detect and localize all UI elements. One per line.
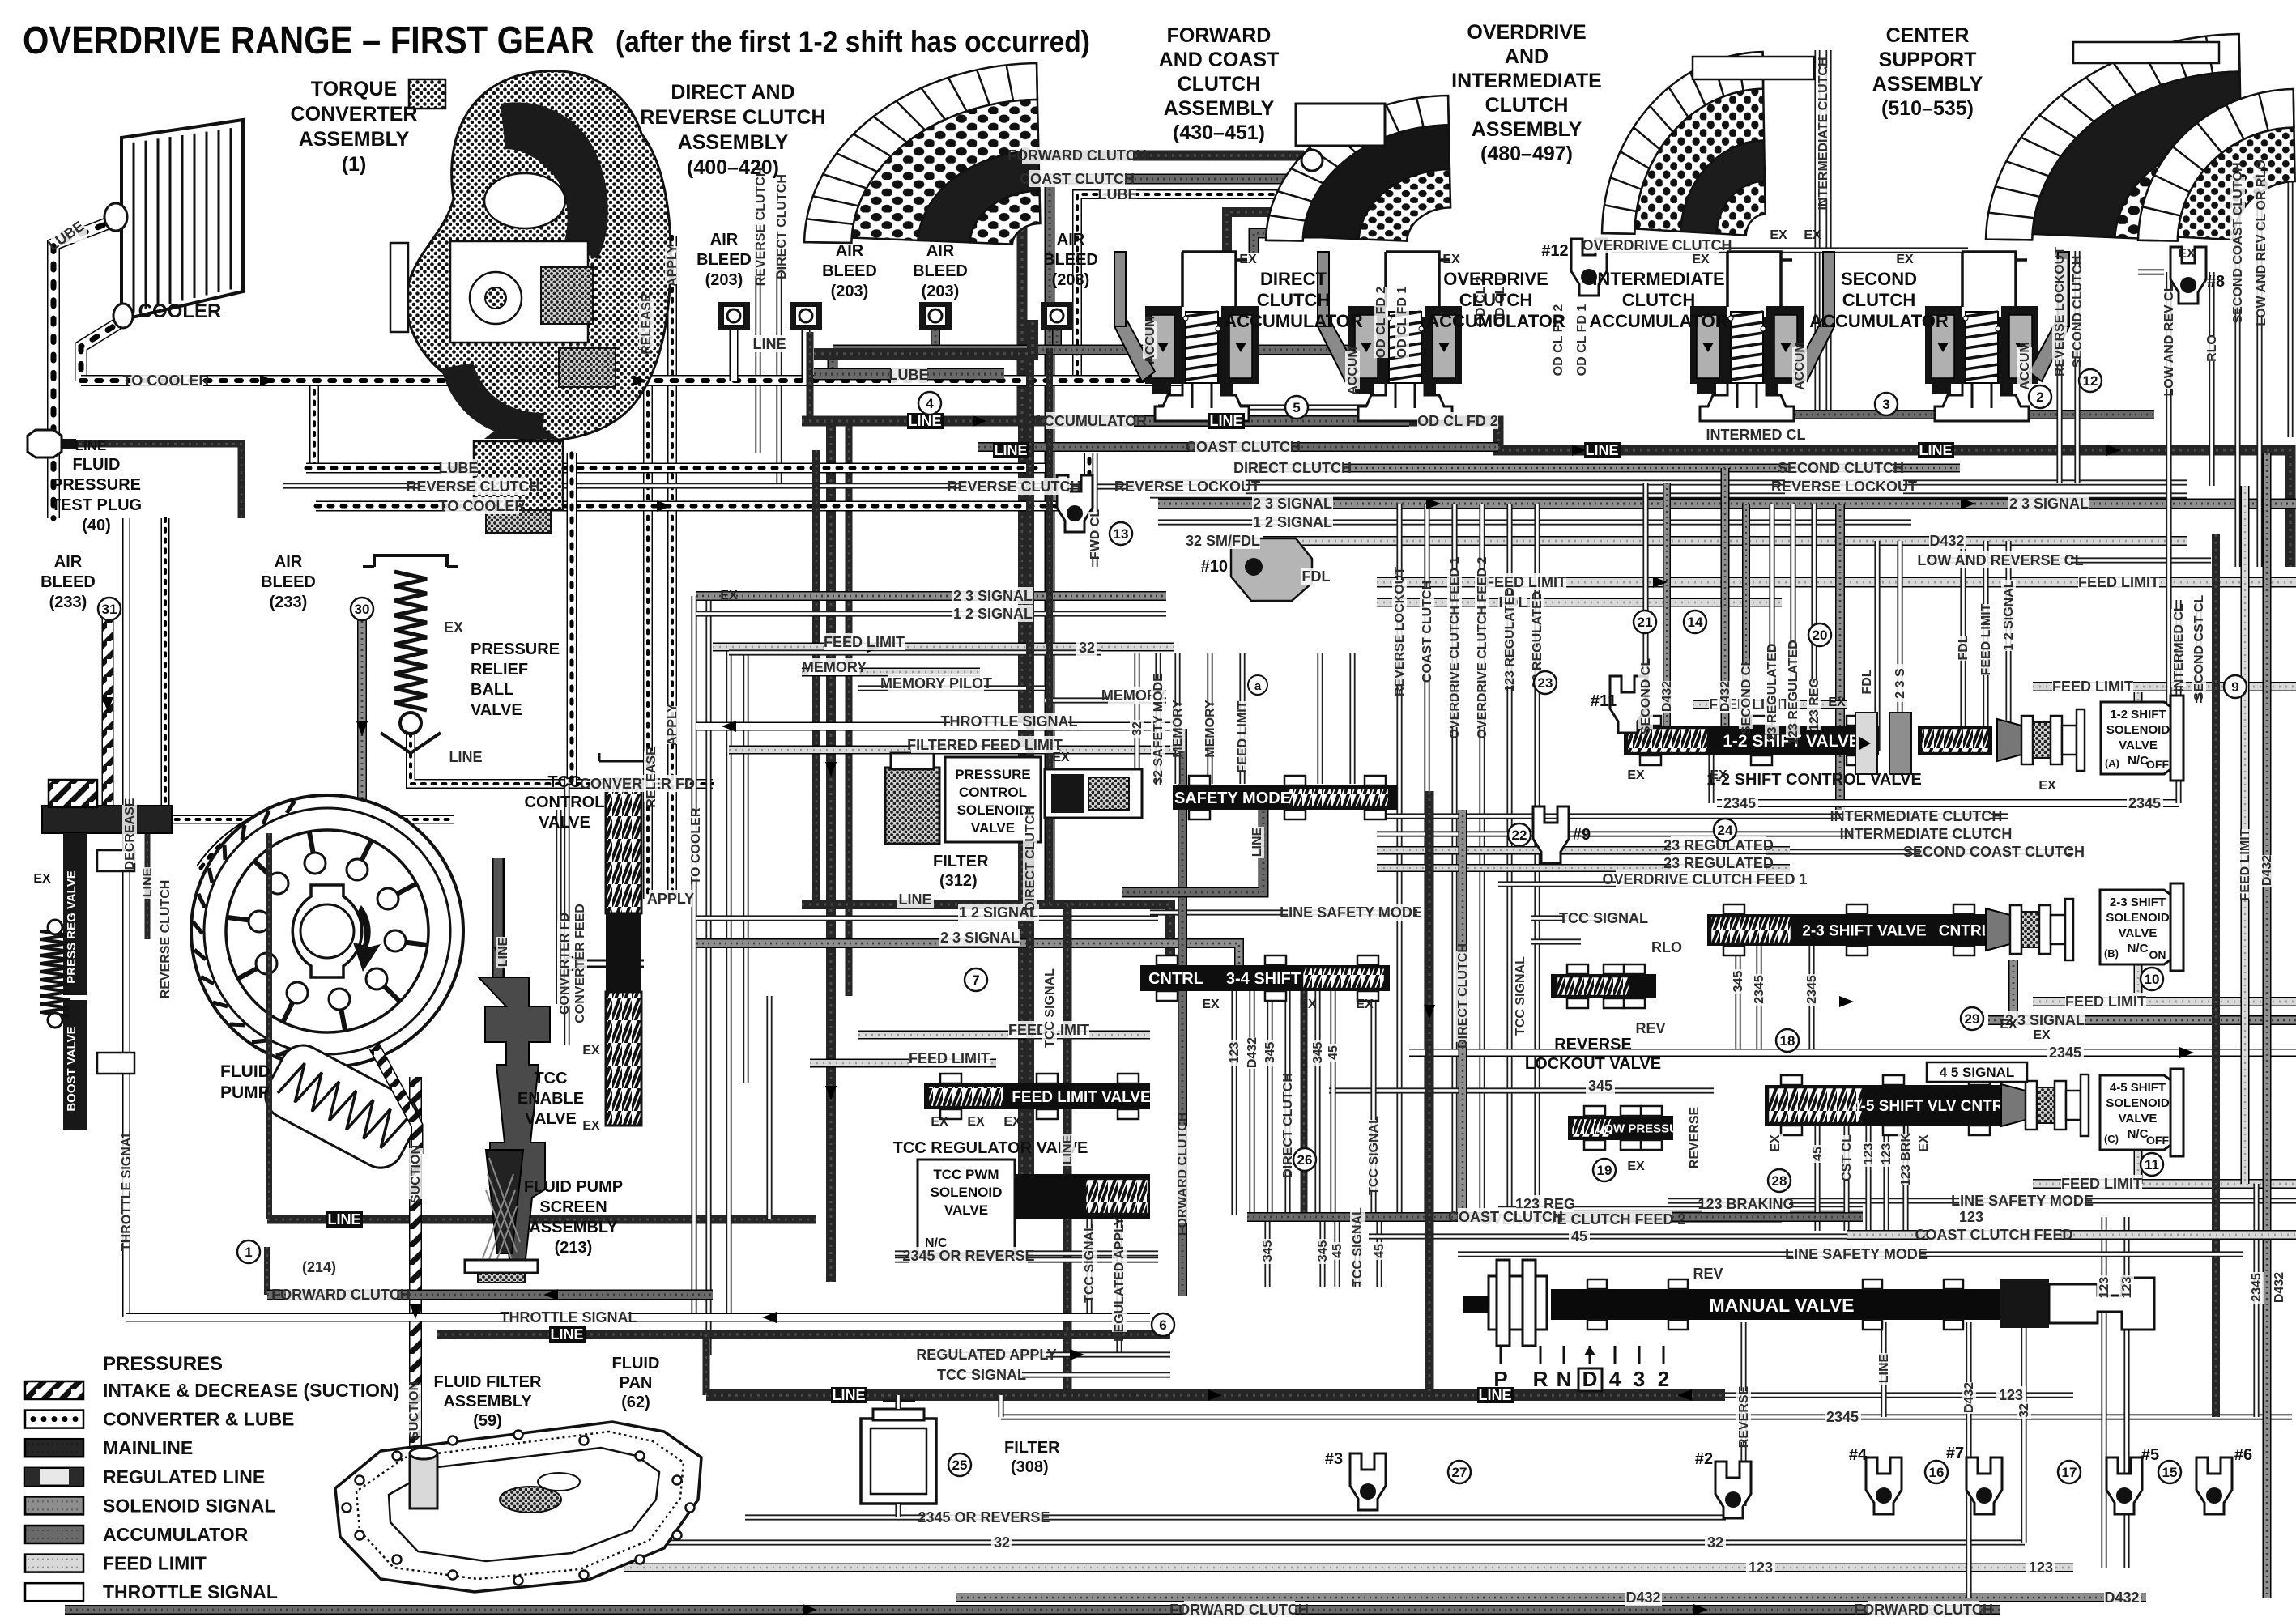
svg-text:D432: D432 bbox=[2104, 1589, 2139, 1606]
svg-text:6: 6 bbox=[1159, 1317, 1166, 1333]
svg-text:EX: EX bbox=[967, 1115, 985, 1129]
svg-text:2 3 SIGNAL: 2 3 SIGNAL bbox=[2005, 1012, 2085, 1028]
svg-text:3-4 SHIFT: 3-4 SHIFT bbox=[1226, 970, 1301, 988]
svg-text:MEMORY: MEMORY bbox=[1171, 700, 1185, 758]
svg-text:SOLENOID: SOLENOID bbox=[957, 802, 1029, 818]
svg-text:PRESSURES: PRESSURES bbox=[103, 1353, 223, 1375]
svg-text:SUPPORT: SUPPORT bbox=[1879, 49, 1977, 71]
svg-text:VALVE: VALVE bbox=[2119, 738, 2158, 752]
svg-text:THROTTLE SIGNAL: THROTTLE SIGNAL bbox=[501, 1309, 637, 1326]
svg-text:#4: #4 bbox=[1849, 1446, 1868, 1464]
svg-text:(40): (40) bbox=[82, 517, 111, 534]
svg-text:#12: #12 bbox=[1541, 242, 1568, 260]
svg-text:BLEED: BLEED bbox=[261, 573, 316, 591]
svg-text:DIRECT CLUTCH: DIRECT CLUTCH bbox=[775, 174, 789, 279]
svg-text:TEST PLUG: TEST PLUG bbox=[51, 496, 142, 514]
svg-text:N/C: N/C bbox=[2128, 1127, 2149, 1141]
svg-text:DIRECT CLUTCH: DIRECT CLUTCH bbox=[1024, 806, 1037, 911]
svg-text:OVERDRIVE RANGE – FIRST GEAR: OVERDRIVE RANGE – FIRST GEAR bbox=[23, 19, 594, 62]
svg-text:ASSEMBLY: ASSEMBLY bbox=[1872, 73, 1983, 96]
svg-text:ASSEMBLY: ASSEMBLY bbox=[1164, 97, 1275, 120]
svg-text:LINE: LINE bbox=[1877, 1353, 1891, 1383]
svg-text:SCREEN: SCREEN bbox=[539, 1198, 607, 1216]
svg-text:VALVE: VALVE bbox=[944, 1202, 988, 1218]
svg-text:INTERMED CL: INTERMED CL bbox=[1706, 427, 1806, 443]
svg-text:CLUTCH: CLUTCH bbox=[1257, 290, 1330, 310]
svg-text:TCC PWM: TCC PWM bbox=[933, 1167, 999, 1182]
svg-text:(203): (203) bbox=[831, 283, 869, 300]
svg-text:REVERSE CLUTCH: REVERSE CLUTCH bbox=[640, 106, 825, 129]
svg-text:MANUAL VALVE: MANUAL VALVE bbox=[1710, 1295, 1855, 1316]
svg-text:PRESSURE: PRESSURE bbox=[52, 476, 141, 494]
svg-text:AIR: AIR bbox=[275, 553, 303, 571]
svg-text:CNTRL: CNTRL bbox=[1148, 970, 1203, 988]
svg-text:123: 123 bbox=[1999, 1387, 2023, 1403]
svg-text:123 REG: 123 REG bbox=[1808, 678, 1821, 731]
svg-text:2345 OR REVERSE: 2345 OR REVERSE bbox=[902, 1248, 1034, 1264]
svg-text:LINE: LINE bbox=[1209, 413, 1242, 429]
svg-text:LINE: LINE bbox=[994, 442, 1027, 458]
svg-text:(B): (B) bbox=[2104, 947, 2119, 960]
svg-text:D: D bbox=[1582, 1367, 1598, 1391]
svg-text:345: 345 bbox=[1311, 1042, 1325, 1064]
svg-text:CONTROL: CONTROL bbox=[959, 785, 1027, 800]
svg-text:SOLENOID: SOLENOID bbox=[2106, 1096, 2170, 1110]
svg-text:COAST CLUTCH: COAST CLUTCH bbox=[1448, 1209, 1563, 1225]
svg-text:APPLY: APPLY bbox=[666, 704, 679, 746]
svg-text:10: 10 bbox=[2145, 972, 2160, 987]
svg-text:FEED LIMIT: FEED LIMIT bbox=[1485, 574, 1566, 590]
svg-text:12: 12 bbox=[2083, 373, 2098, 389]
svg-text:LINE: LINE bbox=[327, 1211, 360, 1228]
svg-text:OD CL FD 1: OD CL FD 1 bbox=[1395, 287, 1409, 359]
svg-text:TCC SIGNAL: TCC SIGNAL bbox=[1043, 968, 1057, 1048]
svg-text:BOOST VALVE: BOOST VALVE bbox=[65, 1026, 79, 1111]
svg-text:PRESSURE: PRESSURE bbox=[471, 640, 560, 658]
svg-text:FDL: FDL bbox=[1957, 635, 1970, 660]
svg-text:FORWARD CLUTCH: FORWARD CLUTCH bbox=[1176, 1113, 1190, 1236]
svg-text:(203): (203) bbox=[1052, 271, 1090, 289]
svg-text:ACCUMULATOR: ACCUMULATOR bbox=[1426, 311, 1565, 331]
svg-text:REVERSE CLUTCH: REVERSE CLUTCH bbox=[159, 880, 173, 999]
svg-text:ASSEMBLY: ASSEMBLY bbox=[443, 1393, 532, 1411]
svg-text:R: R bbox=[1533, 1367, 1548, 1391]
svg-text:32: 32 bbox=[994, 1534, 1010, 1551]
svg-text:EX: EX bbox=[1627, 1160, 1645, 1173]
svg-text:(A): (A) bbox=[2105, 757, 2119, 769]
svg-text:MEMORY PILOT: MEMORY PILOT bbox=[880, 675, 992, 691]
svg-text:(308): (308) bbox=[1011, 1458, 1049, 1476]
svg-text:2345 OR REVERSE: 2345 OR REVERSE bbox=[918, 1509, 1050, 1526]
svg-text:2 3 SIGNAL: 2 3 SIGNAL bbox=[953, 588, 1033, 604]
svg-text:4-5 SHIFT VLV CNTRL: 4-5 SHIFT VLV CNTRL bbox=[1852, 1098, 2013, 1115]
svg-text:TCC REGULATOR VALVE: TCC REGULATOR VALVE bbox=[893, 1139, 1088, 1157]
svg-text:9: 9 bbox=[2231, 679, 2238, 695]
svg-text:TCC: TCC bbox=[547, 773, 581, 791]
svg-text:LINE: LINE bbox=[752, 336, 786, 352]
svg-text:45: 45 bbox=[1373, 1244, 1387, 1258]
svg-text:BLEED: BLEED bbox=[913, 262, 968, 280]
svg-text:26: 26 bbox=[1297, 1152, 1313, 1168]
svg-text:23: 23 bbox=[1538, 675, 1553, 691]
svg-text:APPLY: APPLY bbox=[647, 891, 694, 907]
svg-text:REVERSE: REVERSE bbox=[1554, 1036, 1632, 1053]
svg-text:EX: EX bbox=[444, 619, 463, 636]
svg-text:CLUTCH: CLUTCH bbox=[1178, 73, 1261, 96]
svg-text:EX: EX bbox=[1769, 1134, 1783, 1152]
svg-text:EX: EX bbox=[1627, 768, 1645, 782]
svg-text:LINE: LINE bbox=[449, 749, 482, 765]
svg-text:FORWARD CLUTCH: FORWARD CLUTCH bbox=[1169, 1602, 1309, 1617]
svg-text:EX: EX bbox=[1692, 253, 1710, 266]
svg-text:2-3 SHIFT VALVE: 2-3 SHIFT VALVE bbox=[1802, 922, 1926, 939]
svg-text:OD CL FD 2: OD CL FD 2 bbox=[1374, 287, 1388, 359]
svg-text:AIR: AIR bbox=[926, 242, 955, 260]
svg-text:CLUTCH: CLUTCH bbox=[1622, 290, 1695, 310]
svg-text:ACCUM: ACCUM bbox=[1793, 342, 1807, 390]
svg-text:4 5 SIGNAL: 4 5 SIGNAL bbox=[1940, 1065, 2015, 1080]
svg-text:EX: EX bbox=[2033, 1028, 2051, 1042]
svg-text:BALL: BALL bbox=[471, 681, 513, 699]
svg-text:REVERSE: REVERSE bbox=[1688, 1106, 1702, 1168]
svg-text:123 BRK: 123 BRK bbox=[1899, 1133, 1913, 1186]
svg-text:D432: D432 bbox=[1246, 1037, 1259, 1068]
svg-text:ASSEMBLY: ASSEMBLY bbox=[1472, 118, 1582, 141]
svg-text:LINE: LINE bbox=[75, 438, 107, 453]
svg-text:TO COOLER: TO COOLER bbox=[123, 372, 210, 389]
svg-text:LOW PRESSURE: LOW PRESSURE bbox=[1596, 1121, 1695, 1135]
svg-text:LOW AND REV CL OR RLO: LOW AND REV CL OR RLO bbox=[2255, 160, 2268, 326]
svg-text:1-2 SHIFT: 1-2 SHIFT bbox=[2110, 708, 2166, 721]
svg-text:123: 123 bbox=[1862, 1143, 1876, 1165]
svg-text:123 REGULATED: 123 REGULATED bbox=[1787, 640, 1800, 745]
svg-text:32: 32 bbox=[1707, 1534, 1723, 1551]
svg-text:TCC SIGNAL: TCC SIGNAL bbox=[1367, 1116, 1381, 1195]
svg-text:FWD CL: FWD CL bbox=[1088, 509, 1102, 560]
svg-text:32: 32 bbox=[1079, 640, 1095, 656]
svg-text:EX: EX bbox=[33, 872, 51, 886]
svg-text:CLUTCH: CLUTCH bbox=[1459, 290, 1532, 310]
svg-text:RELIEF: RELIEF bbox=[471, 661, 528, 679]
svg-text:FEED LIMIT: FEED LIMIT bbox=[1236, 700, 1250, 772]
svg-text:CONTROL: CONTROL bbox=[525, 794, 605, 811]
svg-text:ASSEMBLY: ASSEMBLY bbox=[678, 131, 789, 154]
svg-text:INTERMEDIATE CLUTCH: INTERMEDIATE CLUTCH bbox=[1817, 57, 1830, 210]
svg-text:AIR: AIR bbox=[836, 242, 864, 260]
svg-text:3: 3 bbox=[1882, 397, 1889, 412]
svg-text:2345: 2345 bbox=[1826, 1409, 1859, 1425]
svg-text:DIRECT AND: DIRECT AND bbox=[671, 81, 794, 104]
svg-text:FORWARD CLUTCH: FORWARD CLUTCH bbox=[1854, 1602, 1993, 1617]
svg-text:16: 16 bbox=[1929, 1465, 1945, 1480]
svg-text:OD CL FD 2: OD CL FD 2 bbox=[1417, 413, 1498, 429]
svg-text:CENTER: CENTER bbox=[1886, 24, 1970, 47]
svg-text:19: 19 bbox=[1597, 1163, 1612, 1178]
svg-text:45: 45 bbox=[1327, 1045, 1340, 1060]
svg-text:(480–497): (480–497) bbox=[1480, 143, 1573, 165]
svg-text:LINE: LINE bbox=[908, 413, 941, 429]
svg-text:(1): (1) bbox=[342, 153, 367, 176]
svg-text:INTERMEDIATE CLUTCH: INTERMEDIATE CLUTCH bbox=[1840, 826, 2013, 842]
svg-text:45: 45 bbox=[1811, 1147, 1825, 1161]
svg-text:OFF: OFF bbox=[2146, 1134, 2169, 1147]
svg-text:32: 32 bbox=[2017, 1403, 2031, 1418]
svg-text:LINE: LINE bbox=[1478, 1387, 1511, 1403]
svg-text:EX: EX bbox=[1917, 1134, 1931, 1152]
svg-text:5: 5 bbox=[1293, 400, 1300, 415]
svg-text:(233): (233) bbox=[49, 594, 87, 611]
svg-text:#8: #8 bbox=[2207, 273, 2225, 291]
svg-text:2345: 2345 bbox=[1805, 975, 1819, 1004]
svg-text:D432: D432 bbox=[1962, 1382, 1976, 1413]
svg-text:123: 123 bbox=[1749, 1560, 1773, 1576]
svg-text:THROTTLE SIGNAL: THROTTLE SIGNAL bbox=[103, 1581, 278, 1602]
svg-text:TCC: TCC bbox=[534, 1070, 567, 1087]
svg-text:AND COAST: AND COAST bbox=[1159, 49, 1280, 71]
svg-text:REVERSE CLUTCH: REVERSE CLUTCH bbox=[754, 168, 768, 287]
svg-text:LINE SAFETY MODE: LINE SAFETY MODE bbox=[1785, 1246, 1928, 1262]
svg-text:REVERSE LOCKOUT: REVERSE LOCKOUT bbox=[2053, 247, 2067, 377]
svg-text:123 REGULATED: 123 REGULATED bbox=[1503, 587, 1517, 692]
svg-text:21: 21 bbox=[1638, 615, 1653, 630]
svg-text:45: 45 bbox=[1331, 1244, 1344, 1258]
svg-text:LINE: LINE bbox=[898, 891, 931, 908]
svg-text:AIR: AIR bbox=[710, 231, 739, 249]
svg-text:CONVERTER: CONVERTER bbox=[291, 103, 418, 126]
svg-text:DIRECT CLUTCH: DIRECT CLUTCH bbox=[1233, 460, 1352, 476]
svg-text:FDL: FDL bbox=[1302, 568, 1331, 585]
svg-text:TCC SIGNAL: TCC SIGNAL bbox=[1083, 1223, 1097, 1303]
svg-text:COAST CLUTCH: COAST CLUTCH bbox=[1186, 439, 1301, 455]
svg-text:LINE: LINE bbox=[1061, 1134, 1075, 1164]
svg-text:3: 3 bbox=[1634, 1367, 1645, 1391]
svg-text:TORQUE: TORQUE bbox=[311, 78, 398, 100]
svg-text:DIRECT: DIRECT bbox=[1260, 269, 1327, 289]
svg-text:REVERSE: REVERSE bbox=[1737, 1385, 1751, 1448]
svg-text:11: 11 bbox=[2145, 1157, 2159, 1172]
svg-text:OD CL FD 1: OD CL FD 1 bbox=[1575, 304, 1589, 377]
svg-text:FLUID: FLUID bbox=[73, 456, 121, 474]
svg-text:LOW AND REV CL: LOW AND REV CL bbox=[2162, 283, 2176, 396]
svg-text:123: 123 bbox=[2098, 1277, 2111, 1299]
svg-text:REV: REV bbox=[1635, 1020, 1665, 1036]
svg-text:EX: EX bbox=[1356, 998, 1374, 1011]
svg-text:SECOND CL: SECOND CL bbox=[1639, 658, 1653, 734]
svg-text:FORWARD CLUTCH: FORWARD CLUTCH bbox=[1007, 147, 1147, 164]
svg-text:RLO: RLO bbox=[2205, 334, 2219, 362]
svg-text:123: 123 bbox=[1959, 1209, 1983, 1225]
svg-text:4: 4 bbox=[926, 396, 934, 411]
svg-text:COAST CLUTCH: COAST CLUTCH bbox=[1421, 581, 1434, 683]
svg-text:ASSEMBLY: ASSEMBLY bbox=[529, 1219, 618, 1236]
svg-text:FILTERED FEED LIMIT: FILTERED FEED LIMIT bbox=[907, 737, 1063, 753]
svg-text:D432: D432 bbox=[1660, 681, 1674, 712]
svg-text:#6: #6 bbox=[2234, 1446, 2252, 1464]
svg-text:BLEED: BLEED bbox=[696, 251, 752, 269]
svg-text:FEED LIMIT: FEED LIMIT bbox=[2078, 574, 2159, 590]
svg-text:EX: EX bbox=[582, 1044, 600, 1057]
svg-text:D432: D432 bbox=[1625, 1589, 1660, 1606]
svg-text:1-2 SHIFT CONTROL VALVE: 1-2 SHIFT CONTROL VALVE bbox=[1706, 771, 1922, 789]
svg-text:ACCUMULATOR: ACCUMULATOR bbox=[1033, 413, 1147, 429]
svg-text:EX: EX bbox=[1896, 253, 1914, 266]
svg-text:FLUID PUMP: FLUID PUMP bbox=[524, 1178, 623, 1196]
svg-text:EX: EX bbox=[1003, 1115, 1021, 1129]
svg-text:OVERDRIVE: OVERDRIVE bbox=[1467, 21, 1586, 44]
svg-text:123: 123 bbox=[1880, 1143, 1893, 1165]
svg-text:2 3 S: 2 3 S bbox=[1893, 668, 1907, 699]
svg-text:COAST CLUTCH: COAST CLUTCH bbox=[1020, 171, 1135, 187]
svg-text:(510–535): (510–535) bbox=[1881, 97, 1974, 120]
svg-text:4: 4 bbox=[1609, 1367, 1621, 1391]
svg-text:#9: #9 bbox=[1573, 826, 1591, 844]
svg-text:23 REGULATED: 23 REGULATED bbox=[1663, 855, 1774, 871]
svg-text:2-3 SHIFT: 2-3 SHIFT bbox=[2110, 896, 2166, 909]
svg-text:123: 123 bbox=[2029, 1560, 2053, 1576]
svg-text:123 BRAKING: 123 BRAKING bbox=[1698, 1196, 1794, 1212]
svg-text:LINE: LINE bbox=[550, 1326, 583, 1343]
svg-text:ACCUM: ACCUM bbox=[1346, 347, 1360, 395]
svg-text:4-5 SHIFT: 4-5 SHIFT bbox=[2110, 1081, 2166, 1095]
svg-text:SECOND: SECOND bbox=[1841, 269, 1917, 289]
svg-text:32 SM/FDL: 32 SM/FDL bbox=[1186, 533, 1260, 549]
svg-text:#11: #11 bbox=[1591, 692, 1617, 710]
svg-text:THROTTLE SIGNAL: THROTTLE SIGNAL bbox=[941, 713, 1078, 730]
svg-text:CLUTCH: CLUTCH bbox=[1842, 290, 1915, 310]
svg-text:REVERSE CLUTCH: REVERSE CLUTCH bbox=[406, 479, 539, 495]
svg-text:24: 24 bbox=[1718, 823, 1733, 838]
svg-text:COAST CLUTCH FEED: COAST CLUTCH FEED bbox=[1915, 1227, 2073, 1243]
svg-text:345: 345 bbox=[1732, 971, 1745, 993]
svg-text:PUMP: PUMP bbox=[220, 1083, 270, 1102]
svg-text:2: 2 bbox=[1658, 1367, 1669, 1391]
svg-text:2345: 2345 bbox=[2250, 1273, 2264, 1302]
svg-text:2: 2 bbox=[2036, 389, 2043, 405]
svg-text:(430–451): (430–451) bbox=[1173, 121, 1265, 144]
svg-text:INTERMEDIATE CLUTCH: INTERMEDIATE CLUTCH bbox=[1830, 808, 2003, 824]
svg-text:14: 14 bbox=[1688, 615, 1703, 630]
svg-text:SOLENOID: SOLENOID bbox=[2106, 911, 2170, 925]
svg-text:INTAKE & DECREASE (SUCTION): INTAKE & DECREASE (SUCTION) bbox=[103, 1380, 399, 1401]
svg-text:32 SAFETY MODE: 32 SAFETY MODE bbox=[1152, 673, 1165, 785]
svg-text:2 3 SIGNAL: 2 3 SIGNAL bbox=[1253, 496, 1332, 512]
svg-text:(C): (C) bbox=[2104, 1133, 2119, 1145]
svg-text:(203): (203) bbox=[922, 283, 960, 300]
svg-text:FEED LIMIT: FEED LIMIT bbox=[1979, 603, 1993, 675]
svg-text:32: 32 bbox=[1131, 721, 1144, 736]
svg-text:PRESS REG VALVE: PRESS REG VALVE bbox=[65, 870, 79, 983]
svg-text:2345: 2345 bbox=[2128, 795, 2161, 811]
svg-text:OVERDRIVE CLUTCH FEED 1: OVERDRIVE CLUTCH FEED 1 bbox=[1448, 556, 1462, 738]
svg-text:ACCUMULATOR: ACCUMULATOR bbox=[1809, 311, 1949, 331]
svg-text:(233): (233) bbox=[270, 594, 308, 611]
svg-text:CNTRL: CNTRL bbox=[1939, 922, 1991, 939]
svg-text:VALVE: VALVE bbox=[471, 701, 522, 719]
svg-text:INTERMEDIATE: INTERMEDIATE bbox=[1592, 269, 1724, 289]
svg-text:FLUID: FLUID bbox=[612, 1355, 660, 1372]
svg-text:#2: #2 bbox=[1695, 1450, 1713, 1468]
svg-text:FDL: FDL bbox=[1860, 669, 1874, 694]
svg-text:FILTER: FILTER bbox=[933, 853, 989, 870]
svg-text:N: N bbox=[1557, 1367, 1572, 1391]
svg-text:LINE SAFETY MODE: LINE SAFETY MODE bbox=[1280, 904, 1422, 921]
svg-text:LINE: LINE bbox=[141, 867, 155, 897]
svg-text:345: 345 bbox=[1261, 1240, 1275, 1262]
svg-text:RLO: RLO bbox=[1651, 939, 1682, 955]
svg-text:2345: 2345 bbox=[2049, 1045, 2081, 1061]
svg-text:(214): (214) bbox=[302, 1259, 336, 1275]
svg-text:REVERSE LOCKOUT: REVERSE LOCKOUT bbox=[1771, 479, 1917, 495]
svg-text:LINE: LINE bbox=[832, 1387, 865, 1403]
svg-text:EX: EX bbox=[931, 1115, 948, 1129]
svg-text:AIR: AIR bbox=[1057, 231, 1085, 249]
svg-text:REVERSE LOCKOUT: REVERSE LOCKOUT bbox=[1393, 567, 1407, 696]
svg-text:7: 7 bbox=[972, 972, 979, 988]
svg-text:MEMORY: MEMORY bbox=[802, 659, 867, 675]
svg-text:LINE: LINE bbox=[1250, 827, 1264, 857]
svg-text:a: a bbox=[1254, 679, 1262, 693]
svg-text:2 3 SIGNAL: 2 3 SIGNAL bbox=[940, 930, 1020, 946]
svg-text:INTERMED CL: INTERMED CL bbox=[2172, 603, 2186, 692]
svg-text:EX: EX bbox=[1710, 768, 1727, 782]
svg-text:TCC SIGNAL: TCC SIGNAL bbox=[1351, 1207, 1365, 1287]
svg-text:FLUID: FLUID bbox=[220, 1062, 270, 1081]
svg-text:45: 45 bbox=[1571, 1228, 1587, 1245]
svg-text:FLUID FILTER: FLUID FILTER bbox=[434, 1373, 542, 1391]
svg-text:ACCUMULATOR: ACCUMULATOR bbox=[1224, 311, 1363, 331]
svg-text:(59): (59) bbox=[473, 1412, 502, 1430]
svg-text:REVERSE CLUTCH: REVERSE CLUTCH bbox=[947, 479, 1080, 495]
svg-text:BLEED: BLEED bbox=[1043, 251, 1098, 269]
svg-text:ON: ON bbox=[2149, 948, 2166, 961]
svg-text:ACCUMULATOR: ACCUMULATOR bbox=[103, 1524, 249, 1545]
svg-text:BLEED: BLEED bbox=[40, 573, 96, 591]
svg-text:VALVE: VALVE bbox=[539, 814, 590, 832]
svg-text:FEED LIMIT: FEED LIMIT bbox=[2061, 1176, 2142, 1192]
svg-text:23 REGULATED: 23 REGULATED bbox=[1766, 644, 1779, 742]
svg-text:VALVE: VALVE bbox=[2119, 926, 2158, 940]
svg-text:REGULATED LINE: REGULATED LINE bbox=[103, 1466, 265, 1487]
svg-text:FORWARD: FORWARD bbox=[1167, 24, 1272, 47]
svg-text:CONVERTER & LUBE: CONVERTER & LUBE bbox=[103, 1409, 294, 1430]
svg-text:EX: EX bbox=[1770, 228, 1787, 242]
svg-text:(213): (213) bbox=[555, 1239, 593, 1257]
svg-text:OVERDRIVE CLUTCH FEED 2: OVERDRIVE CLUTCH FEED 2 bbox=[1476, 556, 1489, 738]
svg-text:FEED LIMIT: FEED LIMIT bbox=[2238, 828, 2252, 900]
svg-text:RELEASE: RELEASE bbox=[640, 293, 654, 355]
svg-text:LUBE: LUBE bbox=[1098, 186, 1138, 202]
svg-text:(after the first 1-2 shift has: (after the first 1-2 shift has occurred) bbox=[616, 25, 1090, 58]
svg-text:345: 345 bbox=[1316, 1240, 1330, 1262]
svg-text:EX: EX bbox=[2038, 779, 2056, 793]
svg-text:LOW AND REVERSE CL: LOW AND REVERSE CL bbox=[1917, 552, 2083, 568]
svg-text:AND: AND bbox=[1505, 45, 1548, 68]
svg-text:SOLENOID: SOLENOID bbox=[931, 1185, 1003, 1200]
svg-text:CONVERTER FEED: CONVERTER FEED bbox=[573, 904, 587, 1023]
svg-text:LINE: LINE bbox=[496, 937, 510, 967]
svg-text:TCC SIGNAL: TCC SIGNAL bbox=[1559, 910, 1648, 926]
svg-text:FEED LIMIT: FEED LIMIT bbox=[2065, 994, 2146, 1010]
svg-text:17: 17 bbox=[2062, 1465, 2077, 1480]
svg-text:15: 15 bbox=[2162, 1465, 2178, 1480]
svg-text:CONVERTER FD: CONVERTER FD bbox=[580, 776, 695, 792]
svg-text:EX: EX bbox=[1202, 998, 1220, 1011]
svg-text:CST CL: CST CL bbox=[1840, 1134, 1854, 1181]
svg-text:EX: EX bbox=[1442, 253, 1460, 266]
svg-text:(203): (203) bbox=[705, 271, 743, 289]
svg-text:ACCUM: ACCUM bbox=[1144, 316, 1157, 364]
svg-text:EX: EX bbox=[1804, 228, 1821, 242]
